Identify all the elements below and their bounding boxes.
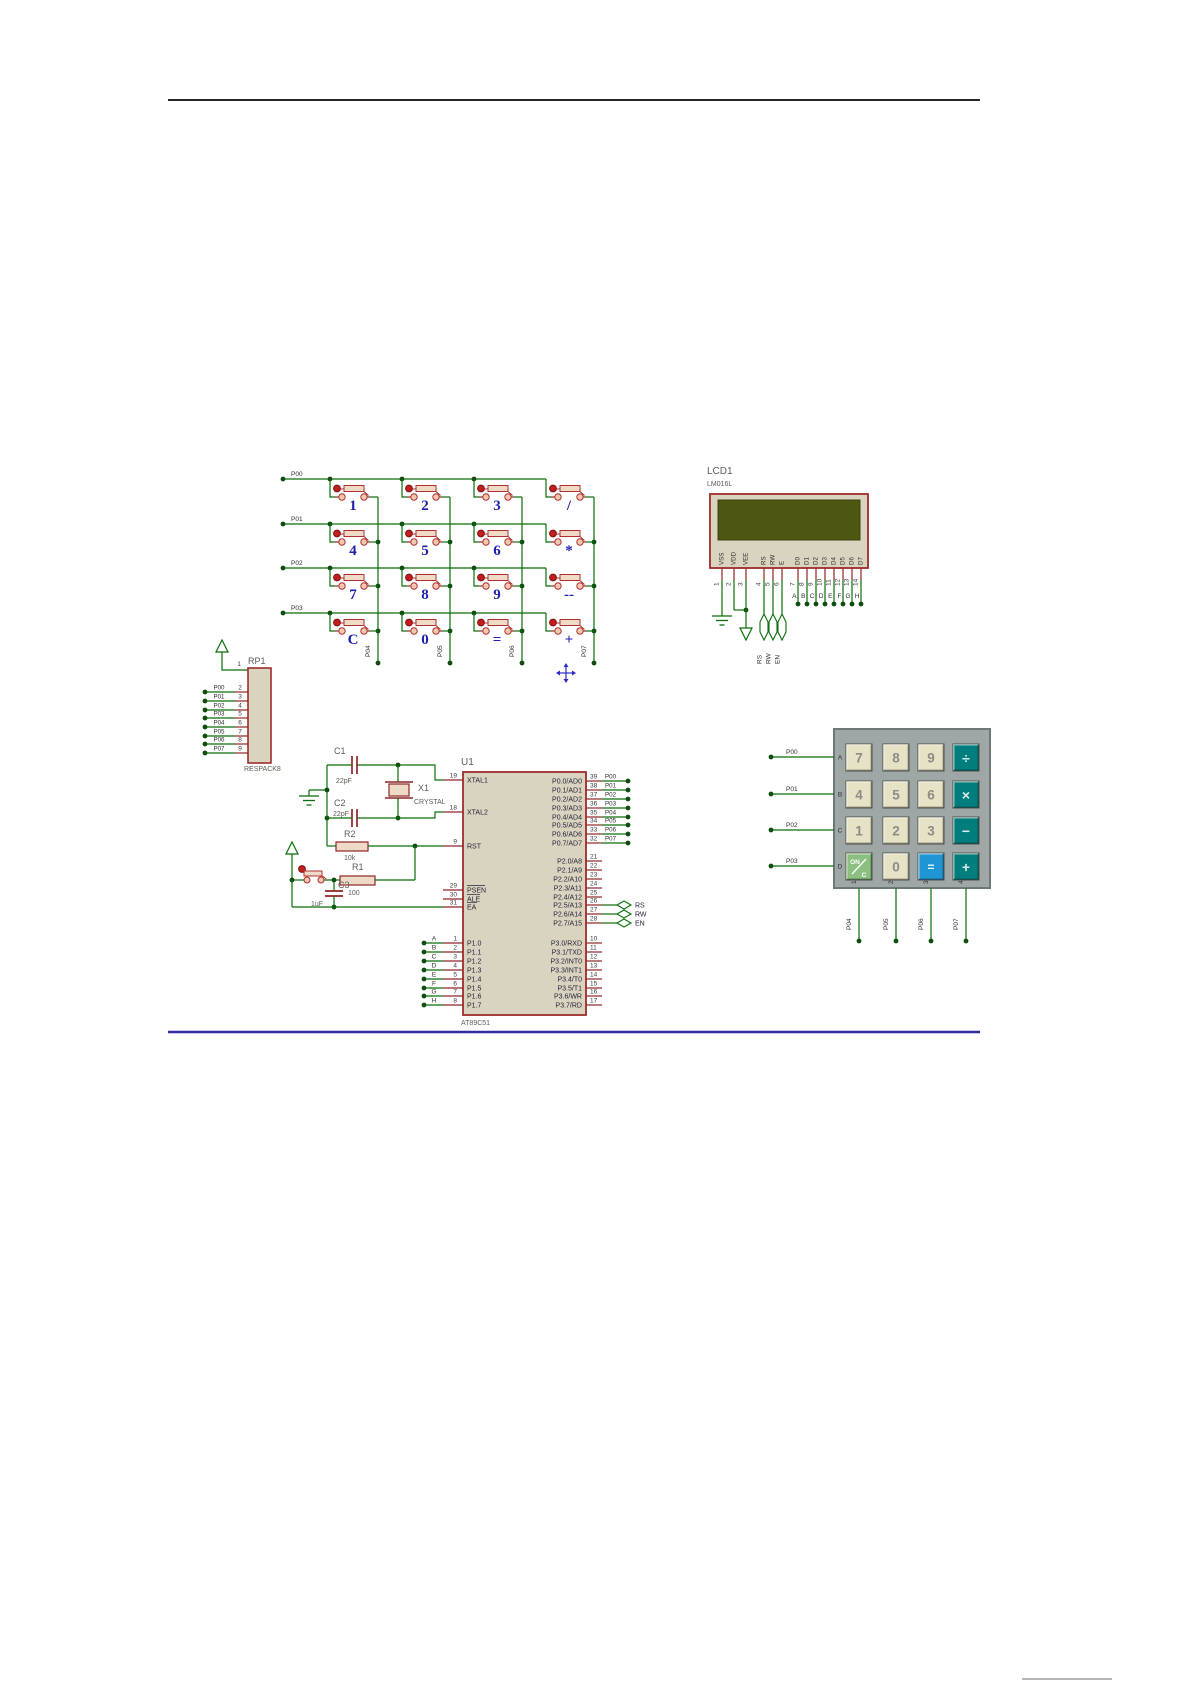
mcu-pin-number: 27: [590, 907, 598, 914]
junction-dot: [422, 968, 427, 973]
mcu-pin-name: P2.6/A14: [553, 912, 582, 919]
mcu-pin-number: 6: [453, 981, 457, 988]
matrix-key-C[interactable]: [344, 620, 364, 626]
net-label: P07: [605, 836, 617, 843]
junction-dot: [823, 602, 828, 607]
respack-pin-number: 1: [237, 661, 241, 668]
mcu-pin-number: 18: [450, 805, 458, 812]
button-actuator-icon: [406, 619, 413, 626]
lcd-pin-number: 11: [826, 579, 833, 586]
marker-icon: [564, 679, 569, 683]
matrix-key-label: 7: [349, 587, 357, 603]
mcu-pin-name: PSEN: [467, 888, 486, 895]
respack-part: RESPACK8: [244, 766, 281, 773]
mcu-pin-number: 34: [590, 818, 598, 825]
lcd-pin-name: E: [779, 561, 786, 565]
mcu-pin-number: 29: [450, 883, 458, 890]
net-label: P06: [605, 827, 617, 834]
matrix-key-9[interactable]: [488, 575, 508, 581]
junction-dot: [281, 477, 286, 482]
mcu-pin-name: P0.4/AD4: [552, 815, 582, 822]
lcd-data-label: D: [819, 593, 824, 600]
junction-dot: [857, 939, 862, 944]
button-terminal-icon: [304, 877, 310, 883]
button-terminal-icon: [505, 628, 511, 634]
button-terminal-icon: [505, 539, 511, 545]
calc-key-label: ×: [962, 787, 970, 803]
junction-dot: [203, 690, 208, 695]
button-terminal-icon: [433, 583, 439, 589]
net-label: P05: [213, 729, 225, 736]
respack-pin-number: 8: [238, 737, 242, 744]
matrix-key-label: 4: [349, 543, 357, 559]
calc-col-tick: 3: [923, 880, 930, 884]
junction-dot: [592, 661, 597, 666]
lcd-pin-number: 4: [756, 582, 763, 586]
respack-body: [248, 668, 271, 763]
mcu-pin-number: 2: [453, 945, 457, 952]
net-label-row: P02: [786, 822, 798, 829]
mcu-pin-number: 16: [590, 989, 598, 996]
junction-dot: [422, 1003, 427, 1008]
matrix-key-4[interactable]: [344, 531, 364, 537]
calc-key-label: 6: [927, 788, 935, 803]
respack-pin-number: 4: [238, 703, 242, 710]
matrix-key-label: 6: [493, 543, 501, 559]
lcd-pin-name: VSS: [719, 553, 726, 565]
net-label: P02: [605, 792, 617, 799]
button-terminal-icon: [433, 494, 439, 500]
button-terminal-icon: [361, 494, 367, 500]
matrix-key-label: 2: [421, 498, 429, 514]
crystal-ref: X1: [418, 783, 429, 793]
matrix-key-1[interactable]: [344, 486, 364, 492]
button-terminal-icon: [505, 583, 511, 589]
mcu-tap-label: EN: [635, 921, 645, 928]
wire: [222, 652, 248, 670]
button-terminal-icon: [505, 494, 511, 500]
mcu-pin-number: 19: [450, 773, 458, 780]
net-label-col: P06: [509, 645, 516, 657]
mcu-pin-number: 37: [590, 792, 598, 799]
mcu-pin-name: P2.7/A15: [553, 921, 582, 928]
mcu-pin-number: 21: [590, 854, 598, 861]
net-label: P03: [213, 711, 225, 718]
mcu-pin-number: 17: [590, 998, 598, 1005]
respack-pin-number: 2: [238, 685, 242, 692]
matrix-key---[interactable]: [560, 575, 580, 581]
mcu-pin-name: RST: [467, 844, 482, 851]
button-actuator-icon: [478, 530, 485, 537]
junction-dot: [203, 699, 208, 704]
button-actuator-icon: [550, 619, 557, 626]
mcu-pin-number: 36: [590, 801, 598, 808]
net-label-col: P04: [846, 918, 853, 930]
res-ref: R1: [352, 862, 364, 872]
net-label-col: P07: [953, 918, 960, 930]
matrix-key-label: 9: [493, 587, 501, 603]
mcu-pin-name: P1.3: [467, 968, 482, 975]
lcd-pin-name: RW: [770, 555, 777, 565]
button-terminal-icon: [361, 628, 367, 634]
calc-key-label: −: [962, 823, 970, 839]
lcd-pin-name: D0: [795, 557, 802, 565]
button-terminal-icon: [555, 539, 561, 545]
schematic-page: P00P01P02P03P04P05P06P07123/456*789--C0=…: [0, 0, 1192, 1685]
matrix-key-label: *: [565, 543, 573, 559]
matrix-key-0[interactable]: [416, 620, 436, 626]
matrix-key-*[interactable]: [560, 531, 580, 537]
respack-pin-number: 5: [238, 711, 242, 718]
lcd-tap-icon: [769, 614, 777, 640]
net-label-row: P03: [786, 858, 798, 865]
mcu-pin-number: 31: [450, 900, 458, 907]
junction-dot: [769, 864, 774, 869]
matrix-key-/[interactable]: [560, 486, 580, 492]
mcu-pin-number: 24: [590, 881, 598, 888]
junction-dot: [850, 602, 855, 607]
cap-value: 22pF: [333, 811, 349, 818]
junction-dot: [520, 661, 525, 666]
matrix-key-label: =: [493, 632, 502, 648]
button-terminal-icon: [433, 539, 439, 545]
junction-dot: [626, 815, 631, 820]
button-actuator-icon: [334, 619, 341, 626]
button-actuator-icon: [550, 485, 557, 492]
respack-pin-number: 3: [238, 694, 242, 701]
lcd-tap-label: EN: [775, 655, 782, 664]
calc-row-letter: A: [838, 755, 843, 762]
button-terminal-icon: [339, 583, 345, 589]
calc-row-letter: D: [838, 864, 843, 871]
mcu-pin-number: 38: [590, 783, 598, 790]
calc-col-tick: 4: [958, 880, 965, 884]
schematic-canvas: P00P01P02P03P04P05P06P07123/456*789--C0=…: [0, 0, 1192, 1685]
calc-key-label: 1: [855, 824, 863, 839]
mcu-pin-name: P2.0/A8: [557, 859, 582, 866]
net-label-col: P05: [437, 645, 444, 657]
button-actuator-icon: [334, 530, 341, 537]
junction-dot: [841, 602, 846, 607]
lcd-tap-label: RW: [766, 652, 773, 664]
net-label: P07: [213, 746, 225, 753]
crystal-body: [389, 784, 409, 796]
junction-dot: [805, 602, 810, 607]
matrix-key-3[interactable]: [488, 486, 508, 492]
mcu-pin-number: 4: [453, 963, 457, 970]
junction-dot: [203, 708, 208, 713]
mcu-pin-name: P1.2: [467, 959, 482, 966]
mcu-pin-name: P1.6: [467, 994, 482, 1001]
junction-dot: [448, 661, 453, 666]
cap-ref: C2: [334, 798, 346, 808]
mcu-pin-number: 35: [590, 810, 598, 817]
mcu-pin-name: P1.1: [467, 950, 482, 957]
button-actuator-icon: [406, 485, 413, 492]
mcu-pin-number: 1: [453, 936, 457, 943]
junction-dot: [626, 832, 631, 837]
net-label-row: P03: [291, 605, 303, 612]
lcd-pin-name: RS: [761, 556, 768, 565]
matrix-key-=[interactable]: [488, 620, 508, 626]
mcu-pin-number: 25: [590, 890, 598, 897]
button-actuator-icon: [334, 485, 341, 492]
junction-dot: [203, 751, 208, 756]
junction-dot: [281, 611, 286, 616]
mcu-pin-name: P3.2/INT0: [550, 959, 582, 966]
matrix-key-8[interactable]: [416, 575, 436, 581]
junction-dot: [422, 950, 427, 955]
button-terminal-icon: [483, 583, 489, 589]
mcu-pin-number: 22: [590, 863, 598, 870]
button-actuator-icon: [478, 574, 485, 581]
mcu-pin-name: P1.7: [467, 1003, 482, 1010]
lcd-pin-name: D1: [804, 557, 811, 565]
lcd-data-label: F: [838, 593, 842, 600]
lcd-pin-name: VEE: [743, 553, 750, 565]
junction-dot: [964, 939, 969, 944]
button-terminal-icon: [483, 539, 489, 545]
lcd-pin-number: 1: [714, 582, 721, 586]
button-terminal-icon: [433, 628, 439, 634]
calc-key-label: 4: [855, 788, 863, 803]
junction-dot: [769, 828, 774, 833]
lcd-tap-label: RS: [757, 654, 764, 664]
mcu-pin-number: 23: [590, 872, 598, 879]
res-ref: R2: [344, 829, 356, 839]
mcu-pin-number: 11: [590, 945, 597, 952]
lcd-data-label: E: [828, 593, 833, 600]
button-terminal-icon: [555, 628, 561, 634]
lcd-vee-arrow-icon: [740, 628, 752, 640]
net-label: F: [432, 981, 436, 988]
lcd-pin-name: D7: [858, 557, 865, 565]
mcu-pin-name: P3.1/TXD: [552, 950, 582, 957]
mcu-pin-name: P0.7/AD7: [552, 841, 582, 848]
respack-pin-number: 9: [238, 746, 242, 753]
matrix-key-label: 1: [349, 498, 357, 514]
net-label: P04: [605, 810, 617, 817]
junction-dot: [422, 959, 427, 964]
junction-dot: [626, 806, 631, 811]
button-terminal-icon: [411, 583, 417, 589]
calc-key-label-c: C: [862, 872, 867, 879]
calc-key-label: 2: [892, 824, 900, 839]
mcu-pin-number: 13: [590, 963, 598, 970]
net-label: C: [432, 954, 437, 961]
button-terminal-icon: [339, 539, 345, 545]
junction-dot: [281, 566, 286, 571]
net-label-col: P04: [365, 645, 372, 657]
calc-key-label: 9: [927, 751, 935, 766]
net-label-row: P02: [291, 560, 303, 567]
mcu-pin-name: P3.0/RXD: [551, 941, 582, 948]
mcu-pin-number: 26: [590, 898, 598, 905]
lcd-pin-number: 2: [726, 582, 733, 586]
lcd-pin-name: D4: [831, 557, 838, 565]
mcu-pin-number: 10: [590, 936, 598, 943]
button-terminal-icon: [555, 583, 561, 589]
mcu-pin-number: 15: [590, 981, 598, 988]
matrix-key-+[interactable]: [560, 620, 580, 626]
button-actuator-icon: [478, 619, 485, 626]
calc-key-label: 5: [892, 788, 900, 803]
matrix-key-5[interactable]: [416, 531, 436, 537]
junction-dot: [203, 725, 208, 730]
button-terminal-icon: [577, 494, 583, 500]
matrix-key-label: 3: [493, 498, 501, 514]
calc-key-label: +: [962, 859, 970, 875]
lcd-pin-name: D2: [813, 557, 820, 565]
matrix-key-label: 8: [421, 587, 429, 603]
mcu-pin-name: P2.1/A9: [557, 868, 582, 875]
calc-key-label: 7: [855, 751, 863, 766]
net-label-row: P01: [786, 786, 798, 793]
lcd-ref: LCD1: [707, 466, 733, 477]
calc-col-tick: 2: [888, 880, 895, 884]
lcd-pin-name: D6: [849, 557, 856, 565]
mcu-pin-number: 32: [590, 836, 598, 843]
junction-dot: [422, 977, 427, 982]
net-label: P02: [213, 703, 225, 710]
button-terminal-icon: [339, 494, 345, 500]
junction-dot: [626, 797, 631, 802]
lcd-pin-number: 3: [738, 582, 745, 586]
button-terminal-icon: [339, 628, 345, 634]
reset-button[interactable]: [304, 871, 322, 876]
net-label: B: [432, 945, 436, 952]
calc-row-letter: C: [838, 828, 843, 835]
matrix-key-label: /: [566, 498, 572, 514]
junction-dot: [325, 788, 330, 793]
button-terminal-icon: [555, 494, 561, 500]
mcu-pin-name: XTAL2: [467, 810, 488, 817]
net-label: P06: [213, 737, 225, 744]
matrix-key-2[interactable]: [416, 486, 436, 492]
mcu-pin-name: P0.5/AD5: [552, 823, 582, 830]
mcu-pin-name: P1.0: [467, 941, 482, 948]
button-actuator-icon: [406, 574, 413, 581]
calc-key-label: =: [927, 860, 934, 874]
mcu-pin-number: 5: [453, 972, 457, 979]
marker-icon: [556, 671, 560, 676]
lcd-tap-icon: [760, 614, 768, 640]
mcu-pin-name: P0.1/AD1: [552, 788, 582, 795]
lcd-pin-name: D5: [840, 557, 847, 565]
net-label: H: [432, 998, 437, 1005]
lcd-pin-number: 12: [835, 578, 842, 586]
junction-dot: [422, 986, 427, 991]
button-terminal-icon: [483, 494, 489, 500]
mcu-tap-icon: [617, 901, 631, 909]
mcu-pin-number: 39: [590, 774, 598, 781]
net-label: G: [431, 989, 436, 996]
button-terminal-icon: [361, 539, 367, 545]
mcu-pin-name: EA: [467, 905, 477, 912]
mcu-tap-icon: [617, 910, 631, 918]
junction-dot: [422, 994, 427, 999]
junction-dot: [203, 716, 208, 721]
mcu-pin-name: P2.2/A10: [553, 877, 582, 884]
marker-icon: [564, 663, 569, 667]
button-actuator-icon: [550, 530, 557, 537]
cap-value: 22pF: [336, 778, 352, 785]
matrix-key-label: --: [564, 587, 574, 603]
cap-ref: C3: [338, 880, 350, 890]
net-label-row: P00: [291, 471, 303, 478]
button-terminal-icon: [483, 628, 489, 634]
mcu-pin-name: P0.6/AD6: [552, 832, 582, 839]
junction-dot: [422, 941, 427, 946]
mcu-tap-icon: [617, 919, 631, 927]
junction-dot: [929, 939, 934, 944]
matrix-key-7[interactable]: [344, 575, 364, 581]
button-terminal-icon: [361, 583, 367, 589]
lcd-data-label: G: [845, 593, 850, 600]
mcu-pin-number: 14: [590, 972, 598, 979]
mcu-ref: U1: [461, 757, 474, 768]
mcu-pin-number: 28: [590, 916, 598, 923]
calc-col-tick: 1: [851, 880, 858, 884]
junction-dot: [376, 661, 381, 666]
button-actuator-icon: [550, 574, 557, 581]
lcd-data-label: H: [855, 593, 860, 600]
button-actuator-icon: [334, 574, 341, 581]
cap-ref: C1: [334, 746, 346, 756]
mcu-pin-name: P2.5/A13: [553, 903, 582, 910]
calc-row-letter: B: [838, 792, 842, 799]
mcu-pin-name: XTAL1: [467, 778, 488, 785]
button-terminal-icon: [577, 583, 583, 589]
lcd-pin-number: 13: [844, 578, 851, 586]
junction-dot: [769, 755, 774, 760]
lcd-pin-name: D3: [822, 557, 829, 565]
mcu-pin-name: P0.3/AD3: [552, 806, 582, 813]
mcu-pin-name: P1.4: [467, 977, 482, 984]
respack-power-arrow-icon: [216, 640, 228, 652]
calc-key-label: 0: [892, 860, 900, 875]
junction-dot: [832, 602, 837, 607]
mcu-pin-name: P3.4/T0: [557, 977, 582, 984]
respack-pin-number: 7: [238, 729, 242, 736]
matrix-key-label: 0: [421, 632, 429, 648]
mcu-pin-number: 3: [453, 954, 457, 961]
resistor-body: [336, 842, 368, 851]
lcd-data-label: C: [810, 593, 815, 600]
calc-key-label: 8: [892, 751, 900, 766]
matrix-key-6[interactable]: [488, 531, 508, 537]
lcd-pin-number: 6: [774, 582, 781, 586]
junction-dot: [626, 779, 631, 784]
junction-dot: [859, 602, 864, 607]
mcu-pin-name: P3.7/RD: [556, 1003, 582, 1010]
net-label: P03: [605, 801, 617, 808]
net-label: P00: [605, 774, 617, 781]
mcu-pin-number: 7: [453, 989, 457, 996]
matrix-key-label: C: [348, 632, 359, 648]
matrix-key-label: +: [565, 632, 574, 648]
lcd-screen: [718, 500, 860, 540]
mcu-part: AT89C51: [461, 1020, 490, 1027]
calc-key-label: 3: [927, 824, 935, 839]
net-label: E: [432, 972, 437, 979]
net-label: A: [432, 936, 437, 943]
mcu-pin-name: P3.5/T1: [557, 986, 582, 993]
res-value: 100: [348, 890, 360, 897]
lcd-part: LM016L: [707, 481, 732, 488]
net-label: P01: [605, 783, 617, 790]
button-terminal-icon: [411, 494, 417, 500]
